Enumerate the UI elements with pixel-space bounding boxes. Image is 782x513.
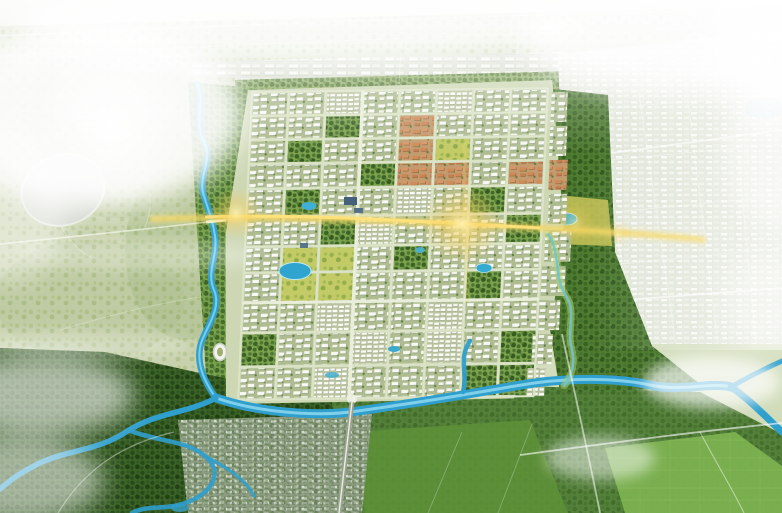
civic-roof-3	[300, 243, 308, 248]
city-block-buildings	[426, 332, 461, 363]
city-block-buildings	[355, 273, 390, 300]
city-block-buildings	[286, 165, 321, 187]
golden-junction-glow-west	[210, 187, 262, 239]
city-block-buildings	[508, 162, 543, 184]
scene-layers	[0, 0, 782, 513]
city-block-buildings	[319, 247, 354, 270]
city-block-buildings	[500, 331, 535, 362]
city-block-buildings	[314, 367, 349, 397]
city-lake-west-park	[279, 263, 311, 280]
city-block-buildings	[504, 245, 539, 268]
city-block-buildings	[244, 274, 279, 301]
city-block-buildings	[278, 334, 313, 365]
mist-streak-wetland-1	[20, 239, 260, 271]
city-block-buildings	[277, 368, 312, 398]
city-block-buildings	[471, 162, 506, 184]
city-pond-south-1	[388, 346, 400, 352]
city-block-buildings	[391, 302, 426, 329]
city-pond-north	[302, 202, 317, 210]
stadium-field	[217, 348, 223, 357]
city-block-buildings	[323, 164, 358, 186]
city-block-buildings	[318, 273, 353, 300]
city-block-buildings	[359, 189, 394, 214]
city-block-buildings	[240, 368, 275, 398]
city-block-buildings	[397, 163, 432, 185]
city-block-buildings	[317, 303, 352, 330]
city-block-buildings	[356, 247, 391, 270]
city-block-buildings	[354, 303, 389, 330]
aerial-masterplan-rendering	[0, 0, 782, 513]
city-block-buildings	[352, 333, 387, 364]
city-block-buildings	[392, 272, 427, 299]
south-smooth-hill	[352, 420, 568, 513]
city-block-buildings	[280, 304, 315, 331]
city-block-buildings	[502, 301, 537, 328]
city-pond-south-2	[325, 372, 339, 378]
rendering-canvas	[0, 0, 782, 513]
city-annex-buildings	[537, 300, 560, 330]
city-block-buildings	[241, 334, 276, 365]
city-block-buildings	[285, 190, 320, 215]
city-block-buildings	[425, 366, 460, 396]
city-lake-east-park	[476, 264, 492, 273]
city-block-buildings	[315, 333, 350, 364]
city-block-buildings	[465, 301, 500, 328]
city-annex-buildings	[548, 160, 567, 190]
cloud-south-field	[545, 436, 655, 480]
city-block-buildings	[503, 271, 538, 298]
right-haze-overlay	[590, 0, 782, 350]
city-block-buildings	[351, 367, 386, 397]
civic-roof-1	[344, 197, 357, 205]
city-block-buildings	[466, 271, 501, 298]
city-block-buildings	[243, 304, 278, 331]
city-pond-center	[415, 247, 425, 253]
city-block-buildings	[429, 272, 464, 299]
civic-roof-2	[354, 208, 363, 213]
city-block-buildings	[507, 187, 542, 212]
golden-junction-glow-east	[555, 202, 595, 242]
city-block-buildings	[388, 366, 423, 396]
golden-junction-glow-center	[422, 184, 502, 264]
cloud-over-river-southeast	[644, 356, 780, 408]
city-block-buildings	[360, 164, 395, 186]
city-block-buildings	[249, 165, 284, 187]
city-block-buildings	[428, 302, 463, 329]
